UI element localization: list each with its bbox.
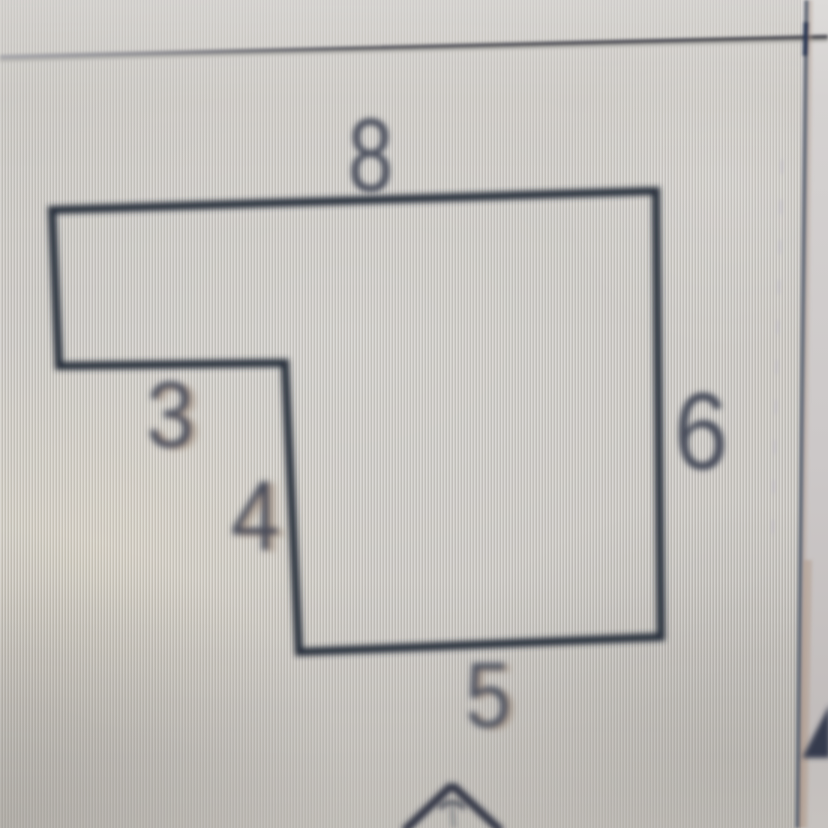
svg-text:4: 4 xyxy=(231,461,281,571)
svg-text:5: 5 xyxy=(465,643,512,747)
svg-text:8: 8 xyxy=(348,97,393,213)
svg-text:6: 6 xyxy=(674,369,728,492)
svg-text:3: 3 xyxy=(146,363,195,468)
